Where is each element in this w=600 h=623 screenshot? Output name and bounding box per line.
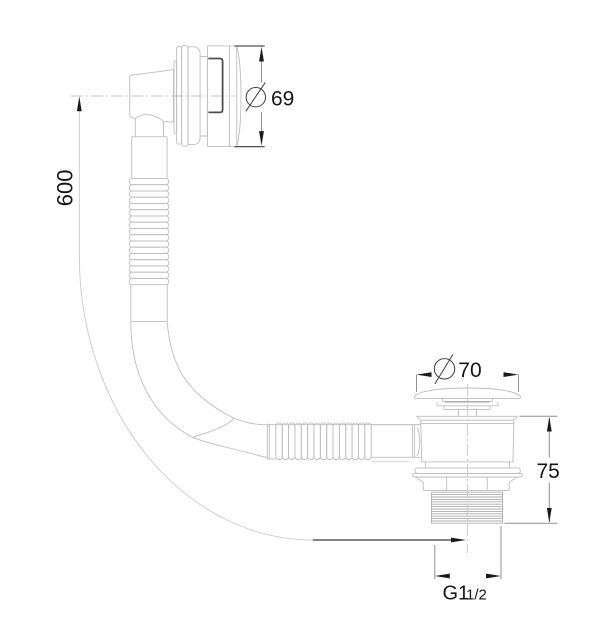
svg-text:75: 75	[537, 460, 560, 483]
svg-text:70: 70	[458, 359, 481, 382]
svg-text:1/2: 1/2	[466, 586, 487, 603]
svg-text:69: 69	[271, 87, 294, 110]
svg-text:600: 600	[53, 169, 78, 206]
